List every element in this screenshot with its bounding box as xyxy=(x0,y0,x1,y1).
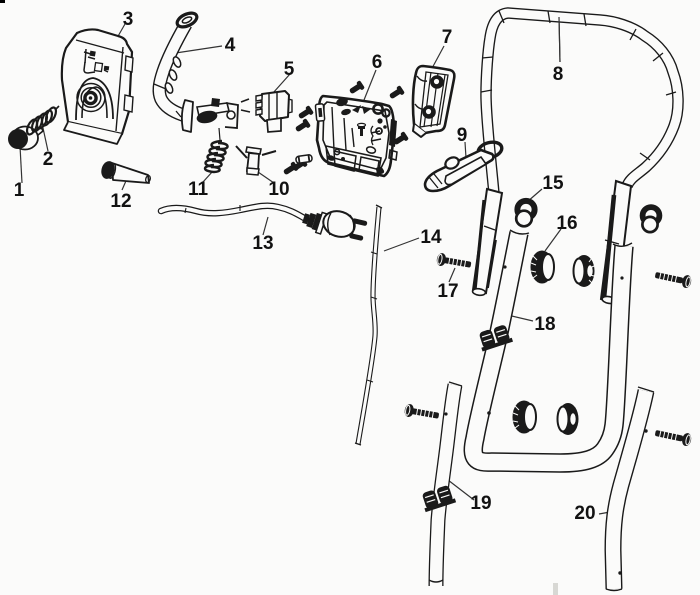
svg-text:5: 5 xyxy=(284,59,295,80)
svg-text:1: 1 xyxy=(14,180,25,201)
svg-text:17: 17 xyxy=(437,281,458,302)
svg-text:14: 14 xyxy=(420,227,442,248)
svg-text:7: 7 xyxy=(442,27,453,48)
svg-text:16: 16 xyxy=(556,213,577,234)
svg-text:13: 13 xyxy=(252,233,273,254)
svg-text:10: 10 xyxy=(268,179,289,200)
svg-text:15: 15 xyxy=(542,173,564,194)
svg-text:4: 4 xyxy=(225,35,236,56)
svg-text:9: 9 xyxy=(457,125,468,146)
svg-text:11: 11 xyxy=(188,179,209,200)
svg-text:18: 18 xyxy=(534,314,555,335)
svg-text:19: 19 xyxy=(470,493,491,514)
svg-text:8: 8 xyxy=(553,64,564,85)
svg-text:6: 6 xyxy=(372,52,383,73)
svg-text:2: 2 xyxy=(43,149,54,170)
svg-text:12: 12 xyxy=(110,191,131,212)
svg-text:20: 20 xyxy=(574,503,595,524)
svg-text:3: 3 xyxy=(123,9,134,30)
